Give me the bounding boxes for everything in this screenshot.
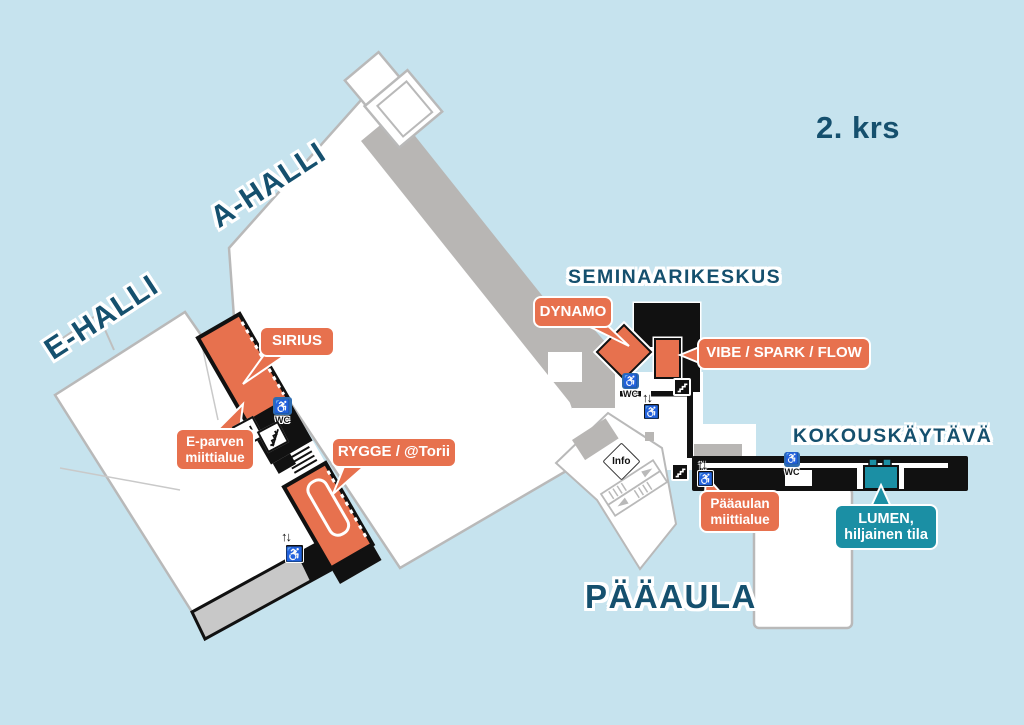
wc-icon-seminaarikeskus: ♿ WC (622, 373, 639, 399)
callout-e-parven-miittialue: E-parven miittialue (175, 428, 255, 471)
accessible-wc-icon: ♿ (784, 452, 800, 467)
stairs-icon (673, 378, 691, 396)
elevator-icon: ↑↓ (281, 530, 290, 543)
wc-icon-kokouskaytava: ♿ WC (784, 452, 800, 477)
callout-paaaulan-miittialue: Pääaulan miittialue (699, 490, 781, 533)
area-label-paaaula: PÄÄAULA (585, 580, 757, 613)
stairs-icon (671, 463, 689, 481)
callout-lumen-quiet-room: LUMEN, hiljainen tila (834, 504, 938, 550)
kokouskaytava-corridor (692, 456, 968, 491)
floor-map-2krs: A-HALLI E-HALLI SEMINAARIKESKUS KOKOUSKÄ… (0, 0, 1024, 725)
area-label-seminaarikeskus: SEMINAARIKESKUS (568, 268, 781, 288)
wheelchair-icon: ♿ (285, 544, 304, 563)
callout-vibe-spark-flow: VIBE / SPARK / FLOW (697, 337, 871, 370)
floor-indicator: 2. krs (816, 110, 900, 146)
accessible-wc-icon: ♿ (622, 373, 639, 389)
area-label-kokouskaytava: KOKOUSKÄYTÄVÄ (793, 427, 992, 447)
corridor-wall (687, 392, 693, 458)
callout-sirius: SIRIUS (259, 326, 335, 357)
wheelchair-icon: ♿ (643, 403, 660, 420)
wheelchair-icon: ♿ (697, 470, 714, 487)
accessible-wc-icon: ♿ (273, 397, 292, 415)
callout-dynamo: DYNAMO (533, 296, 613, 328)
vibe-spark-flow-room (655, 339, 680, 378)
callout-rygge-torii: RYGGE / @Torii (331, 437, 457, 468)
